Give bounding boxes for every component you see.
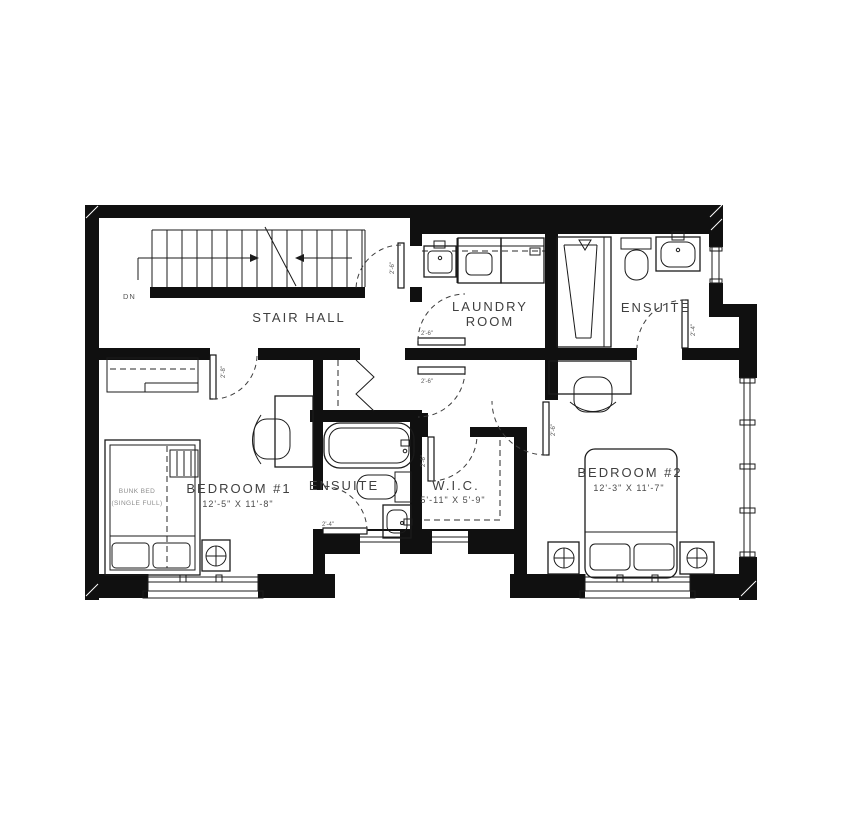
door-bedroom1: 2'-8": [210, 355, 257, 399]
door-size-label: 2'-6": [390, 262, 396, 274]
lamp-icon: [206, 546, 226, 566]
door-hall: 2'-6": [418, 367, 465, 417]
room-label-bedroom2: BEDROOM #2: [577, 465, 682, 480]
pillow: [112, 543, 149, 568]
bathtub-icon: [324, 423, 414, 468]
bunk-bed-label-1: BUNK BED: [119, 488, 155, 495]
lamp-icon: [554, 548, 574, 568]
room-label-laundry-1: LAUNDRY: [452, 299, 528, 314]
window-bedroom2-east: [739, 378, 757, 557]
window-ensuite-east: [709, 247, 723, 283]
room-label-laundry-2: ROOM: [466, 314, 514, 329]
floor-plan: DN 2'-6" 2'-6" 2'-6" 2'-8" 2'-6" 2'-6" 2…: [0, 0, 852, 818]
bunk-bed-label-2: (SINGLE FULL): [111, 500, 162, 507]
door-size-label: 2'-6": [421, 455, 427, 467]
ensuite-top-fixtures: [557, 232, 700, 347]
toilet-icon: [621, 238, 651, 280]
nightstand: [680, 542, 714, 574]
door-stair-to-laundry: 2'-6": [356, 243, 404, 290]
nightstand: [202, 540, 230, 571]
bedroom1-furniture: BUNK BED (SINGLE FULL): [105, 358, 313, 575]
room-label-ensuite-mid: ENSUITE: [309, 478, 379, 493]
laundry-sink-icon: [424, 241, 456, 277]
vanity-sink-icon: [656, 232, 700, 271]
door-size-label: 2'-6": [551, 424, 557, 436]
door-size-label: 2'-4": [691, 324, 697, 336]
bunk-bed: BUNK BED (SINGLE FULL): [105, 440, 200, 575]
nightstand: [548, 542, 579, 574]
window-bedroom1-south: [143, 574, 263, 598]
window-bay-ensuite-mid: [360, 531, 400, 569]
bifold-door-linen-closet: [338, 360, 374, 411]
shower-icon: [557, 237, 611, 347]
door-ensuite-mid: 2'-4": [322, 486, 367, 534]
room-dims-bedroom2: 12'-3" X 11'-7": [593, 483, 664, 493]
door-size-label: 2'-6": [421, 331, 433, 337]
pillow: [634, 544, 674, 570]
stair-break-line: [265, 227, 296, 286]
door-size-label: 2'-6": [421, 379, 433, 385]
room-label-wic: W.I.C.: [432, 478, 479, 493]
room-dims-bedroom1: 12'-5" X 11'-8": [202, 499, 273, 509]
desk-chair: [253, 415, 291, 464]
door-size-label: 2'-8": [221, 366, 227, 378]
pillow: [590, 544, 630, 570]
desk: [275, 396, 313, 467]
stair-down-label: DN: [123, 292, 136, 301]
window-bay-wic: [432, 531, 468, 569]
closet-bedroom1: [107, 358, 198, 392]
room-label-bedroom1: BEDROOM #1: [186, 481, 291, 496]
lamp-icon: [687, 548, 707, 568]
room-label-stair-hall: STAIR HALL: [252, 310, 345, 325]
washer-icon: [458, 238, 501, 283]
pillow: [153, 543, 190, 568]
door-wic: 2'-6": [421, 435, 477, 481]
room-dims-wic: 5'-11" X 5'-9": [420, 495, 485, 505]
dryer-icon: [501, 238, 544, 283]
stair-direction-arrow: [138, 254, 352, 280]
room-label-ensuite-top: ENSUITE: [621, 300, 691, 315]
floor-plan-sheet: DN 2'-6" 2'-6" 2'-6" 2'-8" 2'-6" 2'-6" 2…: [0, 0, 852, 818]
laundry-fixtures: [422, 238, 545, 283]
door-size-label: 2'-4": [322, 522, 334, 528]
